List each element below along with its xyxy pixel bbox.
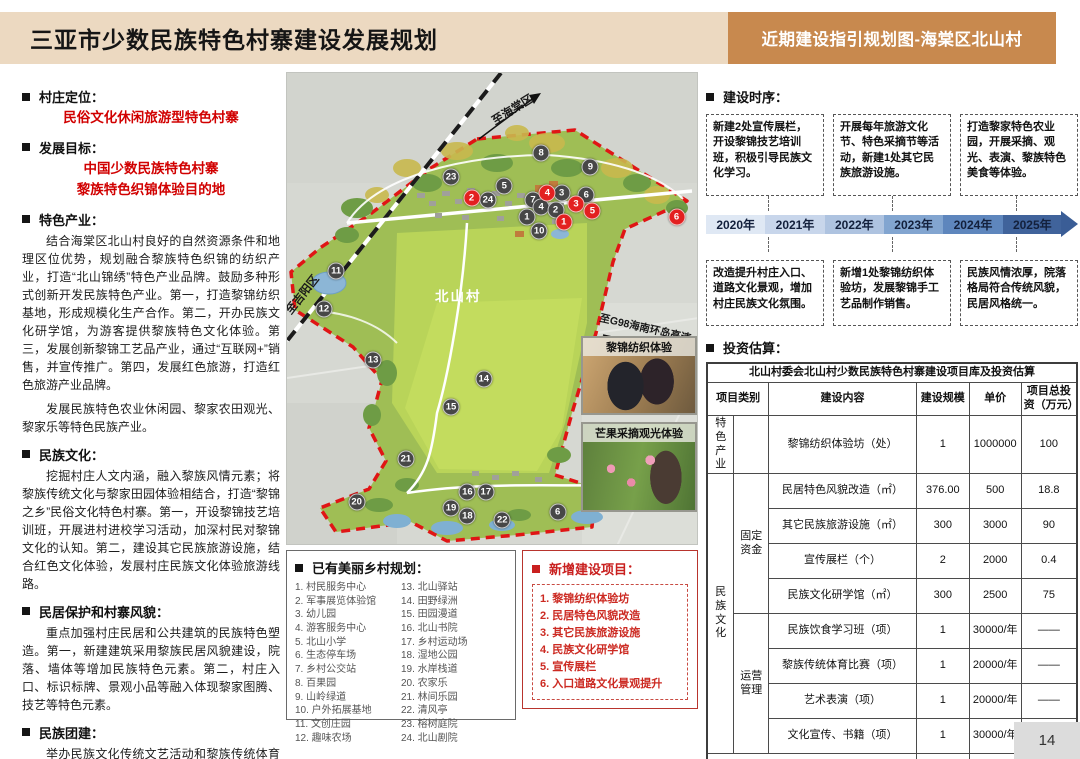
gray-marker-23: 23 — [443, 168, 460, 185]
section-label: 特色产业： — [39, 210, 104, 229]
legend-item: 14. 田野绿洲 — [401, 595, 507, 609]
table-cell: 民族饮食学习班（项） — [769, 614, 917, 649]
square-bullet-icon — [22, 143, 30, 151]
legend-column-2: 13. 北山驿站14. 田野绿洲15. 田园漫道16. 北山书院17. 乡村运动… — [401, 581, 507, 745]
section-label: 村庄定位： — [39, 87, 104, 106]
header-band: 三亚市少数民族特色村寨建设发展规划 — [0, 12, 728, 64]
table-cell: 北山村委会北山村少数民族特色村寨建设项目库及投资估算 — [707, 363, 1077, 383]
section-label: 发展目标： — [39, 138, 104, 157]
left-text-panel: 村庄定位：民俗文化休闲旅游型特色村寨发展目标：中国少数民族特色村寨黎族特色织锦体… — [22, 78, 280, 759]
legend-item: 13. 北山驿站 — [401, 581, 507, 595]
year-segment: 2021年 — [765, 215, 824, 234]
table-cell: 1 — [916, 684, 969, 719]
table-cell: 0.4 — [1021, 544, 1077, 579]
investment-section-title: 投资估算： — [706, 338, 1078, 357]
legend-item: 2. 军事展览体验馆 — [295, 595, 401, 609]
legend-item: 6. 生态停车场 — [295, 649, 401, 663]
timeline-phase-box: 民族风情浓厚，院落格局符合传统风貌，民居风格统一。 — [960, 260, 1078, 326]
gray-marker-22: 22 — [494, 512, 511, 529]
section-heading: 发展目标： — [22, 138, 280, 157]
table-cell: 75 — [1021, 579, 1077, 614]
gray-marker-13: 13 — [365, 352, 382, 369]
table-cell: 90 — [1021, 509, 1077, 544]
gray-marker-1: 1 — [518, 208, 535, 225]
gray-marker-6: 6 — [549, 503, 566, 520]
body-paragraph: 举办民族文化传统文艺活动和黎族传统体育赛事，加强文化宣传，发展文化体验旅游业。 — [22, 745, 280, 759]
square-bullet-icon — [22, 728, 30, 736]
table-cell: 500 — [969, 474, 1021, 509]
timeline-bottom-boxes: 改造提升村庄入口、道路文化景观，增加村庄民族文化氛围。新增1处黎锦纺织体验坊，发… — [706, 260, 1078, 326]
new-projects-list: 1. 黎锦纺织体验坊2. 民居特色风貌改造3. 其它民族旅游设施4. 民族文化研… — [540, 591, 680, 693]
gray-marker-9: 9 — [582, 159, 599, 176]
legend-item: 21. 林间乐园 — [401, 691, 507, 705]
year-segment: 2024年 — [943, 215, 1002, 234]
gray-marker-12: 12 — [315, 300, 332, 317]
table-cell: —— — [1021, 684, 1077, 719]
table-cell: 文化宣传、书籍（项） — [769, 719, 917, 754]
legend-item: 17. 乡村运动场 — [401, 636, 507, 650]
legend-item: 11. 文创庄园 — [295, 718, 401, 732]
square-bullet-icon — [706, 93, 714, 101]
gray-marker-17: 17 — [477, 484, 494, 501]
highlight-text: 中国少数民族特色村寨 — [22, 159, 280, 180]
slide-page: 三亚市少数民族特色村寨建设发展规划 近期建设指引规划图-海棠区北山村 村庄定位：… — [0, 0, 1080, 759]
year-segment: 2020年 — [706, 215, 765, 234]
table-cell: 民族文化研学馆（㎡） — [769, 579, 917, 614]
gray-marker-20: 20 — [348, 493, 365, 510]
square-bullet-icon — [22, 607, 30, 615]
gray-marker-8: 8 — [533, 145, 550, 162]
table-cell — [916, 754, 969, 759]
red-marker-4: 4 — [539, 185, 556, 202]
table-cell: 3000 — [969, 509, 1021, 544]
gray-marker-21: 21 — [397, 451, 414, 468]
new-projects-title: 新增建设项目： — [532, 559, 688, 578]
table-cell: 18.8 — [1021, 474, 1077, 509]
table-cell: 其它民族旅游设施（㎡） — [769, 509, 917, 544]
legend-item: 15. 田园漫道 — [401, 608, 507, 622]
table-cell: 2 — [916, 544, 969, 579]
legend-title: 已有美丽乡村规划： — [295, 558, 507, 577]
new-project-item: 2. 民居特色风貌改造 — [540, 608, 680, 625]
highlight-text: 黎族特色织锦体验目的地 — [22, 180, 280, 201]
table-cell: 376.00 — [916, 474, 969, 509]
red-marker-2: 2 — [463, 189, 480, 206]
map-legend-row: 已有美丽乡村规划： 1. 村民服务中心2. 军事展览体验馆3. 幼儿园4. 游客… — [286, 550, 698, 720]
legend-item: 22. 清风亭 — [401, 704, 507, 718]
table-cell: 运营管理 — [734, 614, 769, 754]
legend-item: 7. 乡村公交站 — [295, 663, 401, 677]
investment-table: 北山村委会北山村少数民族特色村寨建设项目库及投资估算项目类别建设内容建设规模单价… — [706, 362, 1078, 759]
red-marker-1: 1 — [555, 214, 572, 231]
legend-column-1: 1. 村民服务中心2. 军事展览体验馆3. 幼儿园4. 游客服务中心5. 北山小… — [295, 581, 401, 745]
new-projects-box: 新增建设项目： 1. 黎锦纺织体验坊2. 民居特色风貌改造3. 其它民族旅游设施… — [522, 550, 698, 709]
square-bullet-icon — [706, 344, 714, 352]
table-cell: 单价 — [969, 383, 1021, 416]
table-cell: 民居特色风貌改造（㎡） — [769, 474, 917, 509]
legend-item: 1. 村民服务中心 — [295, 581, 401, 595]
legend-item: 24. 北山剧院 — [401, 732, 507, 746]
timeline-phase-box: 新增1处黎锦纺织体验坊，发展黎锦手工艺品制作销售。 — [833, 260, 951, 326]
table-cell: —— — [1021, 614, 1077, 649]
legend-item: 23. 榕树庭院 — [401, 718, 507, 732]
new-project-item: 4. 民族文化研学馆 — [540, 642, 680, 659]
square-bullet-icon — [295, 564, 303, 572]
table-cell: 20000/年 — [969, 684, 1021, 719]
new-project-item: 6. 入口道路文化景观提升 — [540, 676, 680, 693]
timeline-phase-box: 开展每年旅游文化节、特色采摘节等活动，新建1处其它民族旅游设施。 — [833, 114, 951, 196]
map-section: 至海棠区 至吉阳区 至G98海南环岛高速 北山村 892352473642110… — [286, 72, 698, 720]
timeline-top-boxes: 新建2处宣传展栏，开设黎锦技艺培训班，积极引导民族文化学习。开展每年旅游文化节、… — [706, 114, 1078, 196]
red-marker-5: 5 — [584, 203, 601, 220]
timeline-section-title: 建设时序： — [706, 87, 1078, 106]
table-cell: 特色产业 — [707, 416, 734, 474]
table-cell: 1000000 — [969, 416, 1021, 474]
photo-label: 芒果采摘观光体验 — [583, 424, 695, 442]
table-cell: 1 — [916, 719, 969, 754]
table-cell: 2000 — [969, 544, 1021, 579]
timeline-bar: 2020年2021年2022年2023年2024年2025年 — [706, 211, 1078, 237]
table-cell: 1 — [916, 416, 969, 474]
table-cell — [734, 416, 769, 474]
gray-marker-19: 19 — [443, 499, 460, 516]
table-cell: 黎族传统体育比赛（项） — [769, 649, 917, 684]
header: 三亚市少数民族特色村寨建设发展规划 近期建设指引规划图-海棠区北山村 — [0, 12, 1056, 64]
body-paragraph: 发展民族特色农业休闲园、黎家农田观光、黎家乐等特色民族产业。 — [22, 400, 280, 436]
table-cell: 黎锦纺织体验坊（处） — [769, 416, 917, 474]
gray-marker-5: 5 — [496, 178, 513, 195]
new-projects-list-box: 1. 黎锦纺织体验坊2. 民居特色风貌改造3. 其它民族旅游设施4. 民族文化研… — [532, 584, 688, 700]
legend-item: 10. 户外拓展基地 — [295, 704, 401, 718]
table-cell: 项目总投资（万元） — [1021, 383, 1077, 416]
gray-marker-15: 15 — [443, 399, 460, 416]
square-bullet-icon — [22, 450, 30, 458]
gray-marker-14: 14 — [475, 371, 492, 388]
new-project-item: 5. 宣传展栏 — [540, 659, 680, 676]
legend-item: 20. 农家乐 — [401, 677, 507, 691]
timeline-phase-box: 打造黎家特色农业园，开展采摘、观光、表演、黎族特色美食等体验。 — [960, 114, 1078, 196]
table-cell: 民族文化 — [707, 474, 734, 754]
legend-item: 9. 山岭绿道 — [295, 691, 401, 705]
photo-mango-picking: 芒果采摘观光体验 — [581, 422, 697, 512]
table-cell: 项目类别 — [707, 383, 769, 416]
section-heading: 民族团建： — [22, 723, 280, 742]
right-panel: 建设时序： 新建2处宣传展栏，开设黎锦技艺培训班，积极引导民族文化学习。开展每年… — [706, 78, 1078, 759]
table-cell: 2500 — [969, 579, 1021, 614]
red-marker-6: 6 — [668, 208, 685, 225]
timeline-phase-box: 改造提升村庄入口、道路文化景观，增加村庄民族文化氛围。 — [706, 260, 824, 326]
body-paragraph: 重点加强村庄民居和公共建筑的民族特色塑造。第一，新建建筑采用黎族民居风貌建设，院… — [22, 624, 280, 714]
page-number: 14 — [1014, 722, 1080, 759]
gray-marker-18: 18 — [459, 507, 476, 524]
legend-item: 19. 水岸栈道 — [401, 663, 507, 677]
timeline-phase-box: 新建2处宣传展栏，开设黎锦技艺培训班，积极引导民族文化学习。 — [706, 114, 824, 196]
legend-item: 18. 湿地公园 — [401, 649, 507, 663]
photo-label: 黎锦纺织体验 — [583, 338, 695, 356]
table-cell: 合计 — [707, 754, 916, 759]
table-cell: 宣传展栏（个） — [769, 544, 917, 579]
square-bullet-icon — [22, 215, 30, 223]
header-tag: 近期建设指引规划图-海棠区北山村 — [728, 12, 1056, 64]
square-bullet-icon — [22, 93, 30, 101]
village-map: 至海棠区 至吉阳区 至G98海南环岛高速 北山村 892352473642110… — [286, 72, 698, 545]
new-project-item: 3. 其它民族旅游设施 — [540, 625, 680, 642]
table-cell: 艺术表演（项） — [769, 684, 917, 719]
section-heading: 民族文化： — [22, 445, 280, 464]
table-cell: 固定资金 — [734, 474, 769, 614]
page-title: 三亚市少数民族特色村寨建设发展规划 — [30, 21, 438, 55]
legend-existing-plan: 已有美丽乡村规划： 1. 村民服务中心2. 军事展览体验馆3. 幼儿园4. 游客… — [286, 550, 516, 720]
legend-item: 3. 幼儿园 — [295, 608, 401, 622]
gray-marker-10: 10 — [531, 222, 548, 239]
year-segment: 2022年 — [825, 215, 884, 234]
legend-item: 12. 趣味农场 — [295, 732, 401, 746]
gray-marker-11: 11 — [328, 262, 345, 279]
table-cell: 1 — [916, 614, 969, 649]
legend-item: 5. 北山小学 — [295, 636, 401, 650]
body-paragraph: 结合海棠区北山村良好的自然资源条件和地理区位优势，规划融合黎族特色织锦的纺织产业… — [22, 232, 280, 394]
table-cell: 建设内容 — [769, 383, 917, 416]
timeline-connectors-top — [706, 196, 1078, 211]
section-heading: 特色产业： — [22, 210, 280, 229]
highlight-text: 民俗文化休闲旅游型特色村寨 — [22, 108, 280, 129]
table-cell: 300 — [916, 579, 969, 614]
gray-marker-24: 24 — [479, 192, 496, 209]
table-cell: 20000/年 — [969, 649, 1021, 684]
section-label: 民族文化： — [39, 445, 104, 464]
timeline-connectors-bottom — [706, 237, 1078, 252]
table-cell: 建设规模 — [916, 383, 969, 416]
section-heading: 民居保护和村寨风貌： — [22, 602, 280, 621]
red-marker-3: 3 — [568, 195, 585, 212]
table-cell: 1 — [916, 649, 969, 684]
timeline-arrow-icon — [1061, 211, 1078, 237]
table-cell: —— — [1021, 649, 1077, 684]
gray-marker-16: 16 — [459, 484, 476, 501]
section-heading: 村庄定位： — [22, 87, 280, 106]
table-cell: 100 — [1021, 416, 1077, 474]
year-segment: 2023年 — [884, 215, 943, 234]
photo-liji-weaving: 黎锦纺织体验 — [581, 336, 697, 415]
legend-item: 16. 北山书院 — [401, 622, 507, 636]
year-segment: 2025年 — [1003, 215, 1062, 234]
table-cell: 300 — [916, 509, 969, 544]
body-paragraph: 挖掘村庄人文内涵，融入黎族风情元素；将黎族传统文化与黎家田园体验相结合，打造“黎… — [22, 467, 280, 593]
section-label: 民族团建： — [39, 723, 104, 742]
new-project-item: 1. 黎锦纺织体验坊 — [540, 591, 680, 608]
square-bullet-icon — [532, 565, 540, 573]
section-label: 民居保护和村寨风貌： — [39, 602, 169, 621]
legend-item: 4. 游客服务中心 — [295, 622, 401, 636]
legend-item: 8. 百果园 — [295, 677, 401, 691]
table-cell: 30000/年 — [969, 614, 1021, 649]
